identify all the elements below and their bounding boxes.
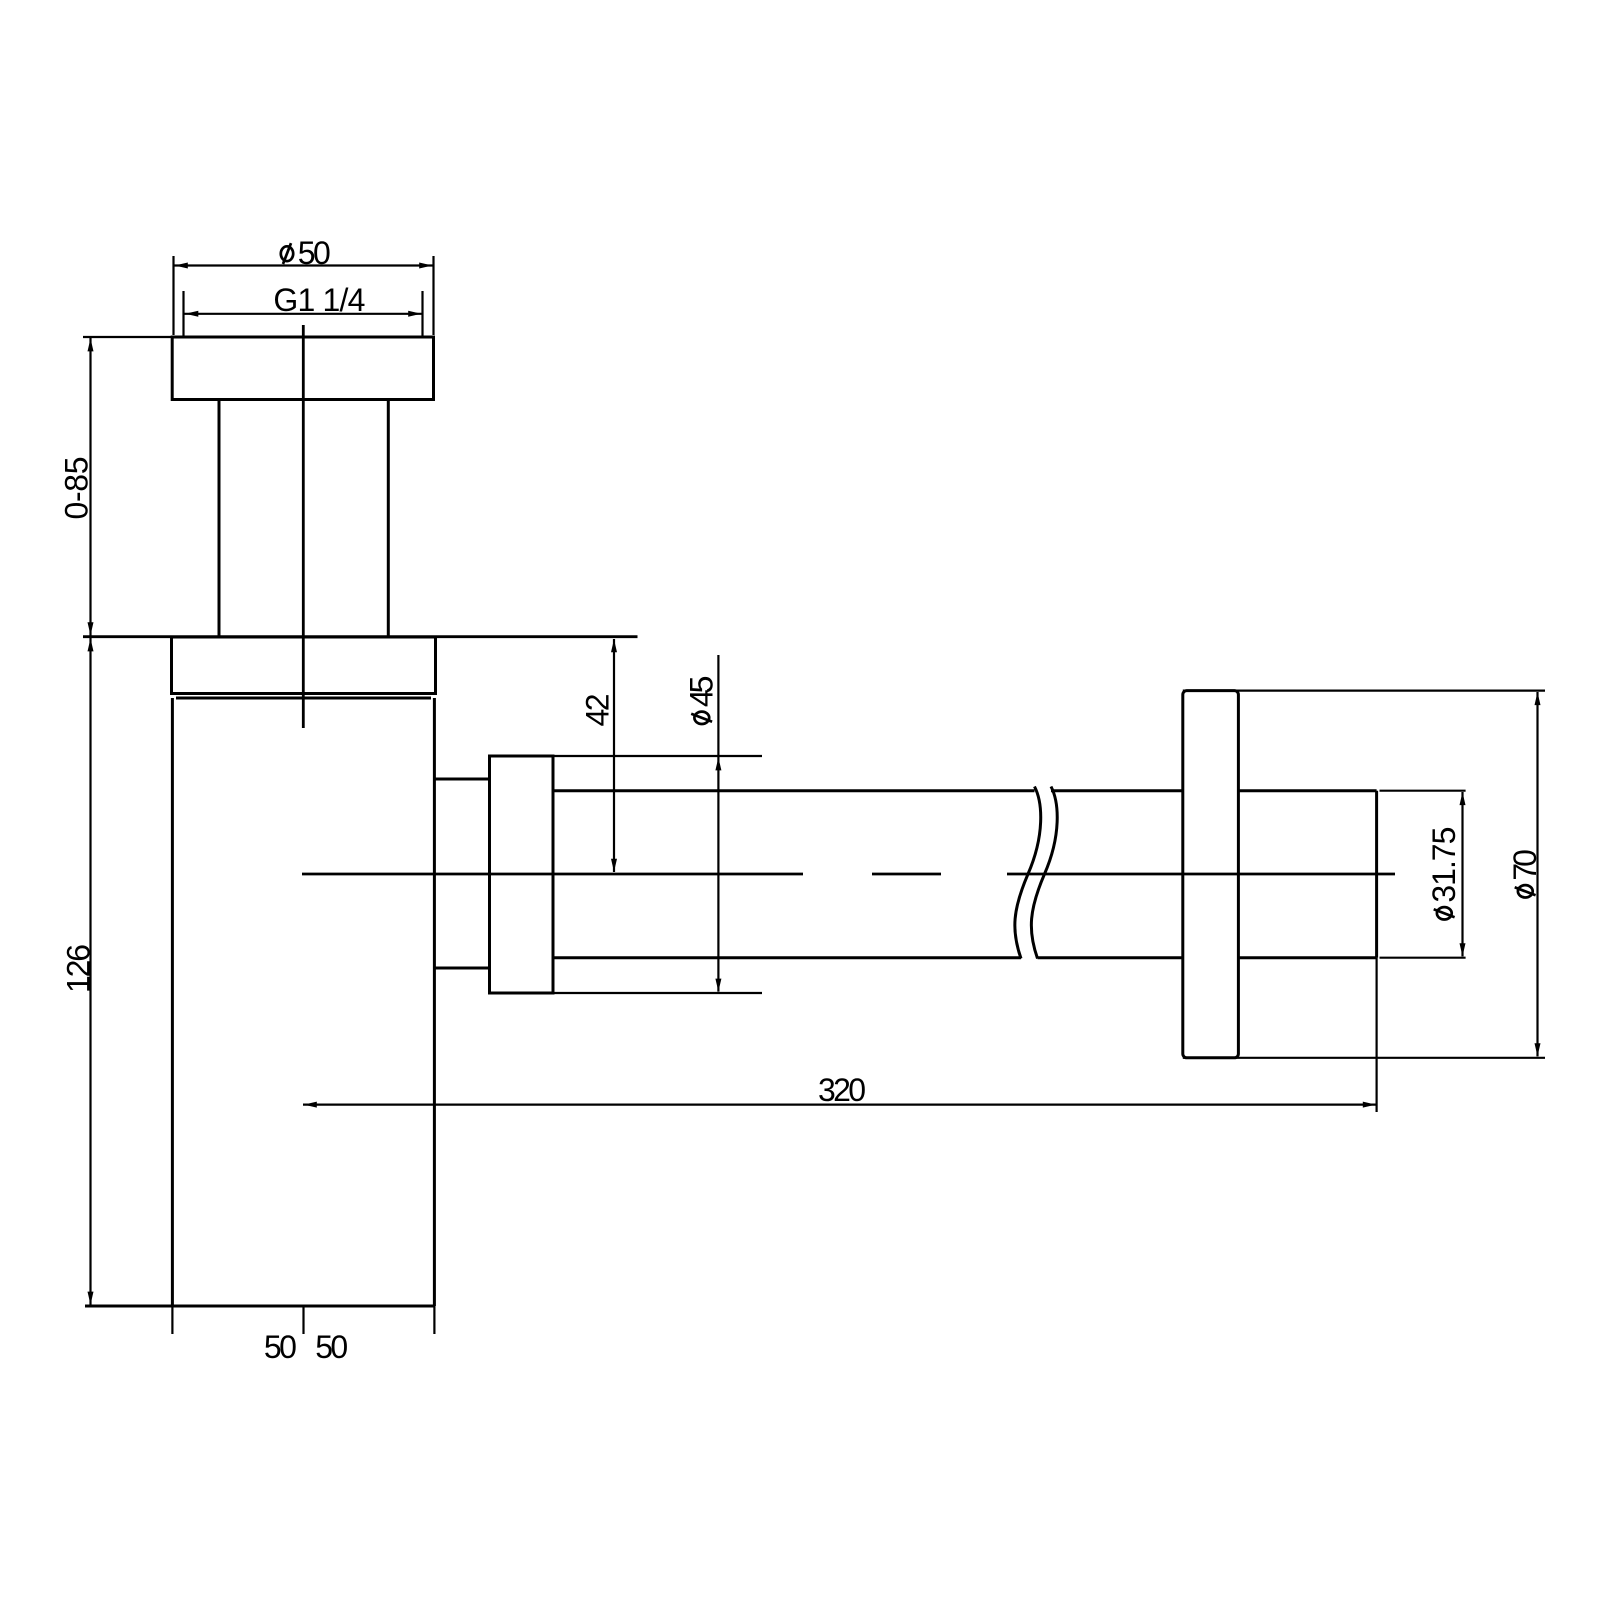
svg-text:50: 50: [315, 1329, 348, 1365]
svg-text:0-85: 0-85: [59, 457, 95, 520]
svg-text:G1 1/4: G1 1/4: [273, 282, 365, 318]
svg-text:42: 42: [580, 694, 616, 727]
svg-text:320: 320: [818, 1072, 866, 1108]
svg-text:50: 50: [298, 235, 331, 271]
svg-text:50: 50: [264, 1329, 297, 1365]
svg-text:45: 45: [684, 676, 720, 708]
svg-text:126: 126: [61, 944, 97, 993]
svg-text:31.75: 31.75: [1426, 827, 1462, 903]
svg-text:70: 70: [1507, 849, 1543, 881]
